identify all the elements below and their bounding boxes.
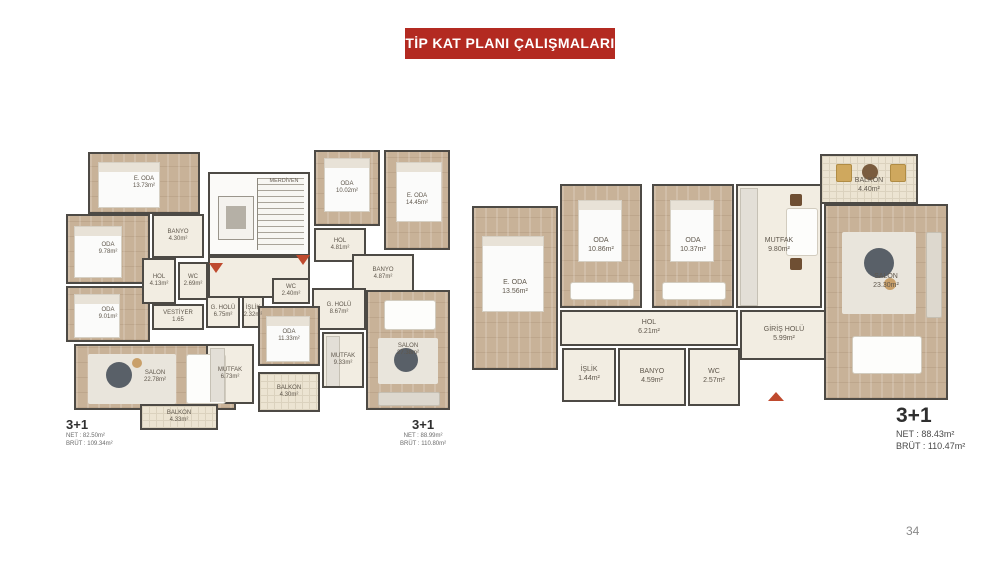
room-utility: İŞLİK1.44m² — [562, 348, 616, 402]
side-table-furniture — [132, 358, 142, 368]
room-name: BALKON — [167, 410, 191, 418]
room-name: BANYO — [167, 229, 188, 237]
room-area: 4.87m² — [372, 274, 393, 282]
room-area: 23.30m² — [873, 282, 899, 291]
room-area: 5.99m² — [764, 335, 804, 344]
room-area: 6.73m² — [218, 374, 242, 382]
room-name: BANYO — [640, 368, 665, 377]
room-label: SALON23.30m² — [873, 273, 899, 291]
room-master-bedroom: E. ODA13.56m² — [472, 206, 558, 370]
room-name: BALKON — [277, 385, 301, 393]
sofa-furniture — [926, 232, 942, 318]
room-label: BALKON4.33m² — [167, 410, 191, 425]
room-bedroom: ODA10.37m² — [652, 184, 734, 308]
room-area: 10.02m² — [336, 188, 358, 196]
room-name: MUTFAK — [765, 237, 793, 246]
room-area: 11.33m² — [278, 336, 300, 344]
room-name: İŞLİK — [578, 366, 600, 375]
room-name: GİRİŞ HOLÜ — [764, 326, 804, 335]
sofa-furniture — [378, 392, 440, 406]
dining-table-furniture — [384, 300, 436, 330]
chair-furniture — [790, 194, 802, 206]
room-area: 22.78m² — [144, 377, 166, 385]
room-label: ODA9.78m² — [99, 242, 118, 257]
room-area: 10.37m² — [680, 246, 706, 255]
page-number: 34 — [906, 524, 919, 538]
room-area: 4.30m² — [167, 236, 188, 244]
room-label: WC2.57m² — [703, 368, 725, 386]
room-name: E. ODA — [502, 279, 528, 288]
room-name: HOL — [150, 274, 169, 282]
room-area: 9.01m² — [99, 314, 118, 322]
room-name: WC — [703, 368, 725, 377]
room-area: 1.44m² — [578, 375, 600, 384]
room-area: 6.75m² — [211, 312, 236, 320]
room-area: 9.78m² — [99, 249, 118, 257]
room-label: HOL6.21m² — [638, 319, 660, 337]
room-area: 27.38m² — [397, 350, 419, 358]
room-name: SALON — [144, 370, 166, 378]
room-name: BANYO — [372, 267, 393, 275]
room-name: VESTİYER — [163, 310, 193, 318]
room-label: SALON27.38m² — [397, 343, 419, 358]
room-label: BALKON4.40m² — [855, 177, 883, 195]
room-area: 6.21m² — [638, 328, 660, 337]
room-name: HOL — [638, 319, 660, 328]
room-label: WC2.69m² — [184, 274, 203, 289]
armchair-furniture — [106, 362, 132, 388]
room-balcony: BALKON4.40m² — [820, 154, 918, 204]
room-name: ODA — [680, 237, 706, 246]
room-label: ODA9.01m² — [99, 307, 118, 322]
unit-brut: BRÜT : 110.47m² — [896, 440, 965, 452]
room-label: E. ODA13.73m² — [133, 176, 155, 191]
room-name: G. HOLÜ — [327, 302, 352, 310]
room-name: ODA — [336, 181, 358, 189]
room-area: 8.67m² — [327, 309, 352, 317]
room-name: ODA — [99, 242, 118, 250]
room-name: E. ODA — [406, 193, 428, 201]
room-entry-hall: GİRİŞ HOLÜ5.99m² — [740, 310, 828, 360]
room-label: İŞLİK1.44m² — [578, 366, 600, 384]
room-label: ODA11.33m² — [278, 329, 300, 344]
entrance-arrow-icon — [296, 255, 310, 265]
entrance-arrow-icon — [768, 392, 784, 401]
room-label: BANYO4.30m² — [167, 229, 188, 244]
room-name: HOL — [331, 238, 350, 246]
slide-page: TİP KAT PLANI ÇALIŞMALARI E. ODA13.73m² … — [0, 0, 1000, 562]
dresser-furniture — [662, 282, 726, 300]
room-name: SALON — [873, 273, 899, 282]
room-living: SALON23.30m² — [824, 204, 948, 400]
room-label: VESTİYER1.65 — [163, 310, 193, 325]
room-area: 14.45m² — [406, 200, 428, 208]
room-label: ODA10.86m² — [588, 237, 614, 255]
room-area: 4.13m² — [150, 281, 169, 289]
room-label: ODA10.02m² — [336, 181, 358, 196]
unit-summary: 3+1 NET : 88.43m² BRÜT : 110.47m² — [896, 404, 965, 452]
room-name: MERDİVEN — [260, 178, 308, 184]
room-label: MUTFAK9.33m² — [331, 353, 355, 368]
room-name: MUTFAK — [331, 353, 355, 361]
room-label: SALON22.78m² — [144, 370, 166, 385]
room-hall: HOL6.21m² — [560, 310, 738, 346]
room-area: 4.33m² — [167, 417, 191, 425]
room-area: 2.69m² — [184, 281, 203, 289]
room-area: 9.80m² — [765, 246, 793, 255]
chair-furniture — [890, 164, 906, 182]
room-area: 13.73m² — [133, 183, 155, 191]
room-label: BALKON4.30m² — [277, 385, 301, 400]
room-name: WC — [282, 284, 301, 292]
room-wc: WC2.57m² — [688, 348, 740, 406]
room-name: ODA — [588, 237, 614, 246]
room-label: MUTFAK9.80m² — [765, 237, 793, 255]
room-area: 2.57m² — [703, 377, 725, 386]
room-area: 2.32m² — [244, 312, 263, 320]
room-area: 4.30m² — [277, 392, 301, 400]
room-name: BALKON — [855, 177, 883, 186]
room-name: ODA — [99, 307, 118, 315]
room-area: 9.33m² — [331, 360, 355, 368]
bed-furniture — [482, 236, 544, 312]
room-name: G. HOLÜ — [211, 305, 236, 313]
room-area: 4.81m² — [331, 245, 350, 253]
room-name: E. ODA — [133, 176, 155, 184]
room-area: 4.40m² — [855, 186, 883, 195]
room-label: GİRİŞ HOLÜ5.99m² — [764, 326, 804, 344]
dresser-furniture — [570, 282, 634, 300]
room-name: SALON — [397, 343, 419, 351]
room-area: 10.86m² — [588, 246, 614, 255]
room-kitchen: MUTFAK9.80m² — [736, 184, 822, 308]
room-label: E. ODA13.56m² — [502, 279, 528, 297]
room-label: HOL4.81m² — [331, 238, 350, 253]
room-label: MUTFAK6.73m² — [218, 367, 242, 382]
dining-table-furniture — [852, 336, 922, 374]
chair-furniture — [790, 258, 802, 270]
room-bathroom: BANYO4.59m² — [618, 348, 686, 406]
room-label: WC2.40m² — [282, 284, 301, 299]
room-area: 4.59m² — [640, 377, 665, 386]
room-area: 2.40m² — [282, 291, 301, 299]
room-area: 1.65 — [163, 317, 193, 325]
room-name: ODA — [278, 329, 300, 337]
unit-type: 3+1 — [896, 404, 965, 428]
kitchen-counter-furniture — [740, 188, 758, 306]
room-area: 13.56m² — [502, 288, 528, 297]
room-label: BANYO4.87m² — [372, 267, 393, 282]
room-name: İŞLİK — [244, 305, 263, 313]
room-label: İŞLİK2.32m² — [244, 305, 263, 320]
room-label: G. HOLÜ8.67m² — [327, 302, 352, 317]
room-label: ODA10.37m² — [680, 237, 706, 255]
room-name: WC — [184, 274, 203, 282]
room-name: MUTFAK — [218, 367, 242, 375]
room-bedroom: ODA10.86m² — [560, 184, 642, 308]
room-label: G. HOLÜ6.75m² — [211, 305, 236, 320]
room-label: BANYO4.59m² — [640, 368, 665, 386]
chair-furniture — [836, 164, 852, 182]
entrance-arrow-icon — [209, 263, 223, 273]
room-label: E. ODA14.45m² — [406, 193, 428, 208]
unit-net: NET : 88.43m² — [896, 428, 965, 440]
room-label: HOL4.13m² — [150, 274, 169, 289]
